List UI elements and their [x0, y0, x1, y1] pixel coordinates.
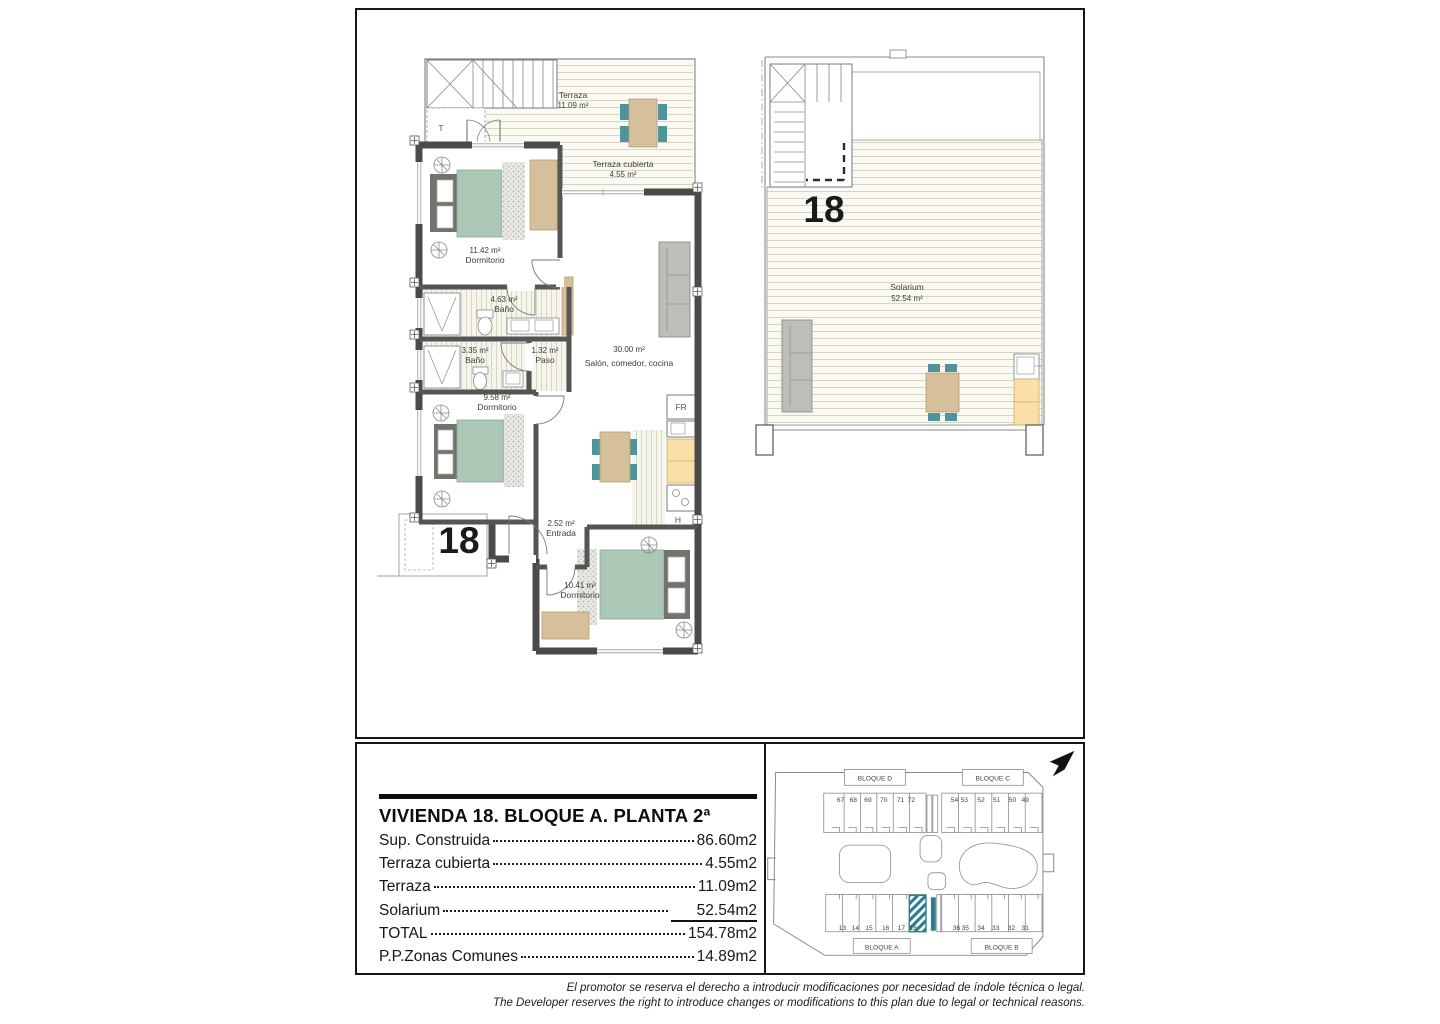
site-plan-drawing: BLOQUE D BLOQUE C BLOQUE A BLOQUE B 67 6… — [766, 744, 1083, 973]
table-row: Terraza cubierta 4.55m2 — [379, 855, 757, 878]
roof-void — [852, 72, 1040, 140]
svg-text:52: 52 — [977, 797, 985, 804]
svg-text:53: 53 — [961, 797, 969, 804]
bedroom1-furniture — [430, 160, 557, 240]
label-dorm2-name: Dormitorio — [477, 402, 516, 412]
solarium-pillars — [756, 425, 1043, 455]
svg-text:16: 16 — [882, 925, 890, 932]
svg-text:18: 18 — [909, 925, 917, 932]
disclaimer-en: The Developer reserves the right to intr… — [325, 996, 1085, 1011]
dot-leader — [443, 910, 668, 912]
highlighted-unit-edge — [931, 897, 936, 930]
north-arrow-icon — [1050, 751, 1075, 777]
svg-text:51: 51 — [993, 797, 1001, 804]
dot-leader — [434, 886, 695, 888]
svg-text:67: 67 — [837, 797, 845, 804]
plan-title: VIVIENDA 18. BLOQUE A. PLANTA 2ª — [379, 805, 761, 827]
row-label: P.P.Zonas Comunes — [379, 948, 518, 966]
svg-text:32: 32 — [1008, 925, 1016, 932]
svg-text:15: 15 — [865, 925, 873, 932]
solarium-area-label: 52.54 m² — [891, 294, 923, 303]
label-terraza-area: 11.09 m² — [558, 101, 589, 110]
dot-leader — [493, 840, 694, 842]
label-dorm1-area: 11.42 m² — [470, 246, 501, 255]
label-bath1-name: Baño — [494, 304, 514, 314]
svg-text:13: 13 — [839, 925, 847, 932]
title-rule — [379, 794, 757, 799]
svg-text:31: 31 — [1022, 925, 1030, 932]
row-value: 11.09m2 — [698, 878, 757, 896]
label-entrada-name: Entrada — [546, 528, 576, 538]
svg-text:68: 68 — [850, 797, 858, 804]
label-terraza-name: Terraza — [559, 90, 588, 100]
solarium-plan: 18 Solarium 52.54 m² — [756, 50, 1044, 455]
table-row: Terraza 11.09m2 — [379, 878, 757, 901]
row-value: 86.60m2 — [697, 832, 757, 850]
label-salon-area: 30.00 m² — [613, 345, 645, 354]
solarium-name-label: Solarium — [890, 282, 924, 292]
stairs — [427, 60, 557, 108]
svg-text:71: 71 — [897, 797, 905, 804]
label-entrada-area: 2.52 m² — [547, 519, 574, 528]
floor-plan-drawing: T — [357, 10, 1083, 735]
row-label: Solarium — [379, 902, 440, 920]
label-terraza-cub-area: 4.55 m² — [609, 170, 636, 179]
label-dorm2-area: 9.58 m² — [483, 393, 510, 402]
label-bath2-area: 3.35 m² — [461, 346, 488, 355]
pool-shapes — [839, 835, 1037, 889]
legal-disclaimer: El promotor se reserva el derecho a intr… — [325, 981, 1085, 1010]
table-row: TOTAL 154.78m2 — [379, 925, 757, 948]
svg-text:72: 72 — [908, 797, 916, 804]
block-b-label: BLOQUE B — [985, 944, 1020, 951]
label-terraza-cub-name: Terraza cubierta — [593, 159, 654, 169]
svg-text:14: 14 — [851, 925, 859, 932]
svg-text:17: 17 — [898, 925, 906, 932]
dot-leader — [521, 956, 694, 958]
label-bath1-area: 4.63 m² — [490, 295, 517, 304]
area-table: Sup. Construida 86.60m2 Terraza cubierta… — [379, 832, 757, 971]
title-block-panel: VIVIENDA 18. BLOQUE A. PLANTA 2ª Sup. Co… — [355, 742, 1085, 975]
svg-text:69: 69 — [864, 797, 872, 804]
block-a-label: BLOQUE A — [865, 944, 899, 951]
table-row: P.P.Zonas Comunes 14.89m2 — [379, 948, 757, 971]
row-value: 154.78m2 — [688, 925, 757, 943]
hob-label: H — [675, 515, 681, 525]
block-c-label: BLOQUE C — [976, 775, 1011, 782]
plan-sheet: T — [0, 0, 1440, 1024]
label-dorm1-name: Dormitorio — [465, 255, 504, 265]
table-row: Solarium 52.54m2 — [379, 902, 757, 925]
solarium-unit-number: 18 — [803, 189, 844, 230]
row-label: Terraza — [379, 878, 431, 896]
row-label: Sup. Construida — [379, 832, 490, 850]
row-value: 4.55m2 — [705, 855, 757, 873]
row-value-underlined: 52.54m2 — [671, 902, 757, 922]
unit-number-label: 18 — [438, 520, 479, 561]
label-salon-name: Salón, comedor, cocina — [585, 358, 674, 368]
svg-text:36: 36 — [953, 925, 961, 932]
label-dorm3-name: Dormitorio — [560, 590, 599, 600]
solarium-stairs — [770, 64, 852, 187]
row-label: Terraza cubierta — [379, 855, 490, 873]
block-d-label: BLOQUE D — [858, 775, 893, 782]
floor-plans-panel: T — [355, 8, 1085, 739]
label-paso-area: 1.32 m² — [531, 346, 558, 355]
table-row: Sup. Construida 86.60m2 — [379, 832, 757, 855]
kitchen-units: FR H — [667, 395, 695, 525]
laundry-label: T — [438, 123, 443, 133]
row-value: 14.89m2 — [697, 948, 757, 966]
label-dorm3-area: 10.41 m² — [564, 581, 596, 590]
dot-leader — [493, 863, 702, 865]
dot-leader — [431, 933, 686, 935]
svg-text:49: 49 — [1022, 797, 1030, 804]
fridge-label: FR — [675, 402, 686, 412]
site-plan: BLOQUE D BLOQUE C BLOQUE A BLOQUE B 67 6… — [766, 744, 1083, 973]
svg-text:35: 35 — [962, 925, 970, 932]
disclaimer-es: El promotor se reserva el derecho a intr… — [325, 981, 1085, 996]
svg-text:70: 70 — [880, 797, 888, 804]
svg-text:34: 34 — [977, 925, 985, 932]
label-paso-name: Paso — [535, 355, 555, 365]
apartment-plan: T — [377, 59, 702, 655]
laundry-area: T — [427, 108, 485, 145]
row-label: TOTAL — [379, 925, 428, 943]
bedroom2-furniture — [434, 414, 524, 487]
label-bath2-name: Baño — [465, 355, 485, 365]
svg-text:33: 33 — [992, 925, 1000, 932]
svg-text:54: 54 — [951, 797, 959, 804]
svg-text:50: 50 — [1009, 797, 1017, 804]
